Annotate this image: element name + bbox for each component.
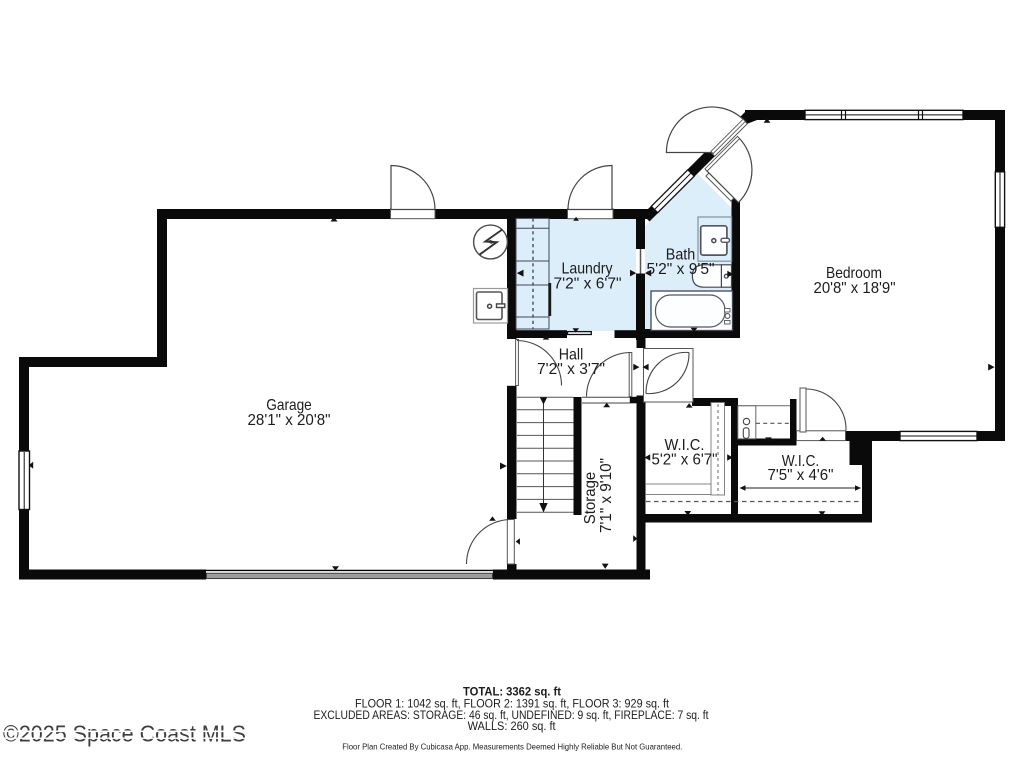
svg-text:7'2" x 6'7": 7'2" x 6'7" — [554, 276, 622, 293]
svg-text:20'8" x 18'9": 20'8" x 18'9" — [814, 280, 896, 297]
svg-text:Floor Plan Created By Cubicasa: Floor Plan Created By Cubicasa App. Meas… — [342, 742, 682, 752]
svg-text:28'1" x 20'8": 28'1" x 20'8" — [248, 412, 331, 429]
svg-text:©2025 Space Coast MLS: ©2025 Space Coast MLS — [3, 721, 246, 747]
svg-text:7'2" x 3'7": 7'2" x 3'7" — [537, 361, 605, 378]
svg-text:5'2" x 6'7": 5'2" x 6'7" — [652, 451, 718, 468]
svg-text:FLOOR 1: 1042 sq. ft, FLOOR 2:: FLOOR 1: 1042 sq. ft, FLOOR 2: 1391 sq. … — [355, 698, 670, 710]
svg-text:WALLS: 260 sq. ft: WALLS: 260 sq. ft — [468, 721, 557, 733]
svg-text:TOTAL: 3362 sq. ft: TOTAL: 3362 sq. ft — [463, 687, 561, 699]
svg-text:7'1" x 9'10": 7'1" x 9'10" — [598, 458, 615, 533]
svg-text:7'5" x 4'6": 7'5" x 4'6" — [768, 467, 834, 484]
svg-text:Storage: Storage — [582, 472, 599, 525]
svg-text:5'2" x 9'5": 5'2" x 9'5" — [647, 261, 715, 278]
